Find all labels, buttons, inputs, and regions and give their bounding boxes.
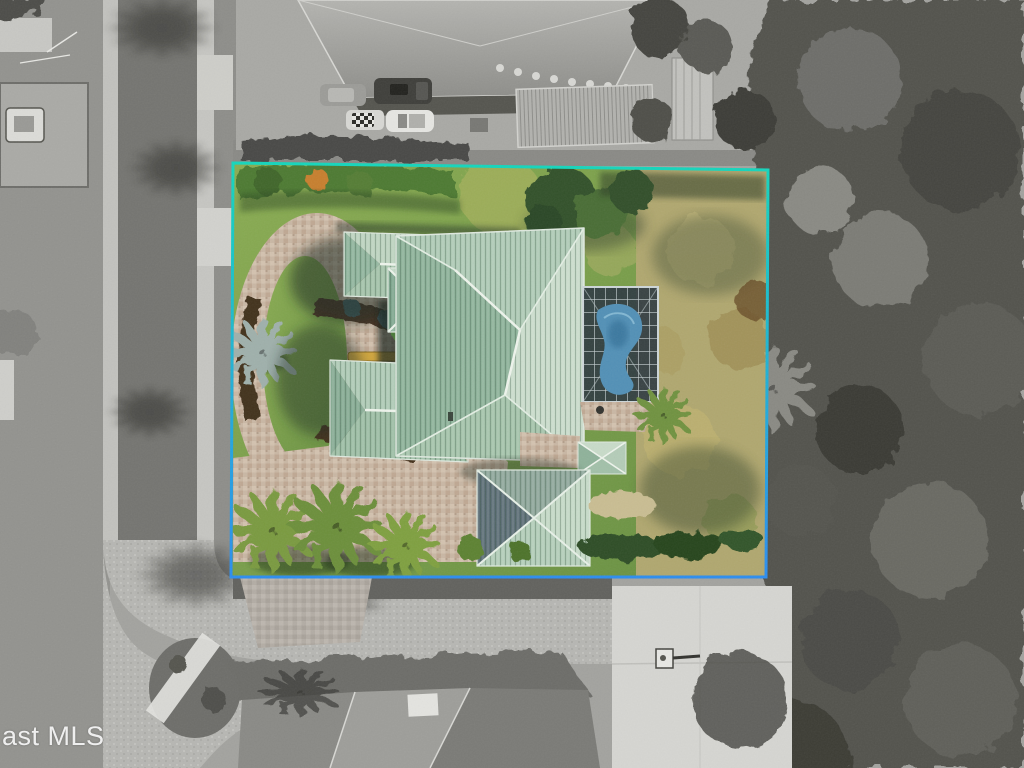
aerial-photo: ast MLS xyxy=(0,0,1024,768)
aerial-photo-canvas xyxy=(0,0,1024,768)
photo-grain xyxy=(0,0,1024,768)
mls-watermark: ast MLS xyxy=(2,721,105,752)
